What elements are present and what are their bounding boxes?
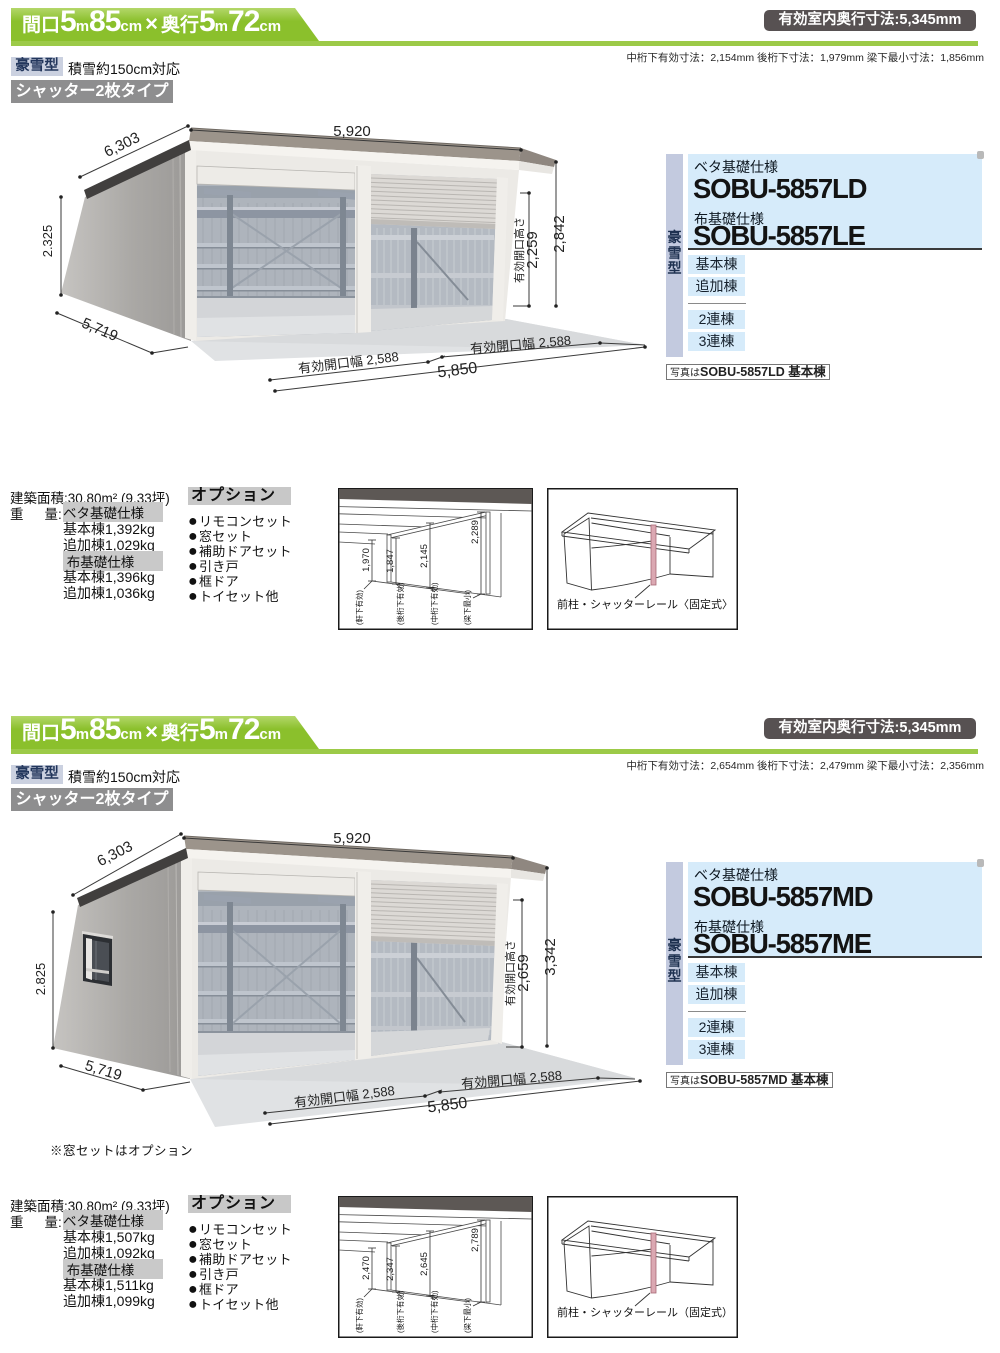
svg-text:5,920: 5,920 [333, 830, 371, 847]
svg-text:2,259: 2,259 [524, 231, 541, 269]
svg-text:2,289: 2,289 [470, 520, 481, 544]
svg-text:(軒下有効): (軒下有効) [354, 1298, 364, 1333]
svg-text:(梁下最小): (梁下最小) [463, 1298, 472, 1333]
svg-text:5,719: 5,719 [79, 315, 120, 345]
svg-text:2.325: 2.325 [40, 225, 55, 258]
svg-text:前柱・シャッターレール〈固定式〉: 前柱・シャッターレール〈固定式〉 [557, 597, 733, 611]
svg-text:6,303: 6,303 [101, 129, 142, 161]
svg-text:(軒下有効): (軒下有効) [354, 590, 364, 625]
svg-text:(中桁下有効): (中桁下有効) [429, 1290, 439, 1333]
svg-text:(後桁下有効): (後桁下有効) [395, 582, 405, 625]
svg-text:2,789: 2,789 [470, 1228, 481, 1252]
svg-text:2.825: 2.825 [33, 963, 48, 996]
svg-text:2,842: 2,842 [551, 215, 568, 253]
svg-text:5,850: 5,850 [427, 1095, 469, 1117]
svg-text:5,920: 5,920 [333, 123, 371, 140]
svg-text:2,645: 2,645 [419, 1252, 430, 1276]
svg-text:1,970: 1,970 [361, 548, 372, 572]
svg-text:6,303: 6,303 [94, 838, 135, 870]
svg-text:3,342: 3,342 [542, 938, 559, 976]
svg-text:2,145: 2,145 [419, 544, 430, 568]
svg-text:5,850: 5,850 [437, 360, 479, 382]
svg-text:1,847: 1,847 [385, 549, 396, 573]
svg-text:2,470: 2,470 [361, 1256, 372, 1280]
svg-text:(後桁下有効): (後桁下有効) [395, 1290, 405, 1333]
svg-text:(梁下最小): (梁下最小) [463, 590, 472, 625]
svg-text:(中桁下有効): (中桁下有効) [429, 582, 439, 625]
svg-text:2,659: 2,659 [515, 954, 532, 992]
svg-text:前柱・シャッターレール（固定式）: 前柱・シャッターレール（固定式） [557, 1305, 733, 1319]
svg-text:2,347: 2,347 [385, 1257, 396, 1281]
